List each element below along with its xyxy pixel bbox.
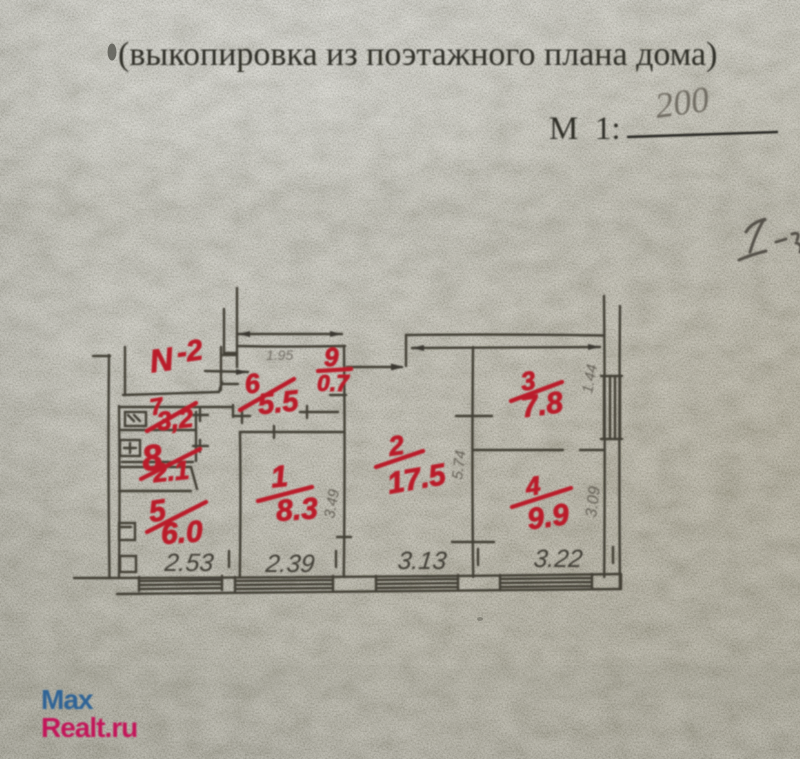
svg-text:-2: -2 [175, 334, 205, 369]
svg-text:М 1:: М 1: [549, 111, 621, 147]
svg-text:5.74: 5.74 [449, 449, 469, 480]
svg-text:5.5: 5.5 [256, 385, 300, 421]
svg-text:Realt.ru: Realt.ru [41, 712, 137, 743]
svg-text:Max: Max [41, 684, 94, 715]
svg-text:1: 1 [269, 460, 289, 495]
svg-text:9: 9 [324, 342, 339, 372]
svg-text:9.9: 9.9 [525, 498, 571, 537]
svg-text:3.22: 3.22 [532, 545, 584, 573]
svg-text:2.39: 2.39 [263, 550, 316, 578]
svg-text:(выкопировка из поэтажного пла: (выкопировка из поэтажного плана дома) [118, 36, 717, 73]
svg-text:200: 200 [653, 79, 712, 126]
svg-text:8.3: 8.3 [275, 492, 319, 528]
svg-text:3.13: 3.13 [396, 547, 448, 575]
svg-text:0.7: 0.7 [317, 370, 350, 396]
svg-text:2.53: 2.53 [162, 549, 215, 577]
svg-text:1.95: 1.95 [266, 347, 293, 363]
svg-text:7.8: 7.8 [519, 386, 565, 425]
